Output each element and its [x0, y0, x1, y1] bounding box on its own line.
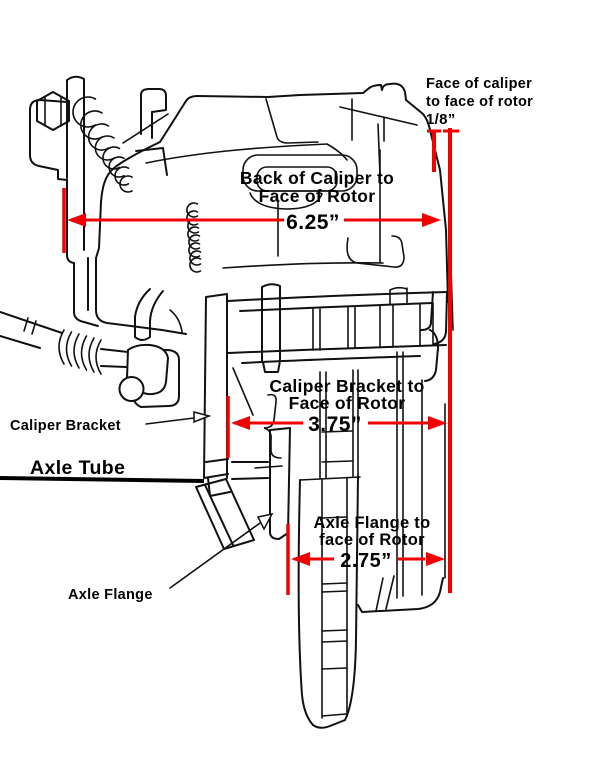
- dim-caliper-face-label-line2: to face of rotor: [426, 94, 533, 110]
- part-label-axle-tube: Axle Tube: [30, 457, 125, 479]
- arrowhead-right: [422, 213, 441, 227]
- axle-flange-plate: [270, 428, 290, 539]
- annotation-caliper-bracket-dim: Caliper Bracket to Face of Rotor 3.75”: [269, 376, 424, 436]
- dim-back-caliper-label-line2: Face of Rotor: [259, 186, 376, 206]
- dim-caliper-face-label-line1: Face of caliper: [426, 76, 532, 92]
- dim-caliper-bracket-label-line2: Face of Rotor: [289, 393, 406, 413]
- arrowhead-left: [231, 416, 250, 430]
- annotation-axle-flange-dim: Axle Flange to face of Rotor 2.75”: [314, 514, 431, 572]
- dim-axle-flange-value: 2.75”: [340, 550, 391, 572]
- arrowhead-right: [426, 552, 445, 566]
- leader-caliper-bracket: [146, 412, 209, 424]
- leader-axle-flange: [170, 514, 272, 588]
- brake-caliper-measurement-diagram: Face of caliper to face of rotor 1/8” Ba…: [0, 0, 600, 765]
- arrowhead-left: [291, 552, 310, 566]
- hex-bolt-head: [37, 92, 69, 130]
- annotation-caliper-face: Face of caliper to face of rotor 1/8”: [426, 76, 533, 128]
- mounting-bracket: [30, 77, 168, 182]
- arrowhead-right: [428, 416, 447, 430]
- diagram-canvas: Face of caliper to face of rotor 1/8” Ba…: [0, 0, 600, 765]
- tie-rod: [0, 312, 168, 401]
- dim-back-caliper-label-line1: Back of Caliper to: [240, 168, 394, 188]
- annotation-back-of-caliper: Back of Caliper to Face of Rotor 6.25”: [240, 168, 394, 234]
- leader-arrowhead: [194, 412, 209, 422]
- pad-carrier: [228, 284, 447, 381]
- spring-coil-left-edge: [187, 203, 201, 272]
- dim-caliper-bracket-value: 3.75”: [308, 413, 362, 436]
- dim-back-caliper-value: 6.25”: [286, 211, 340, 234]
- dim-axle-flange-label-line2: face of Rotor: [319, 531, 425, 549]
- ball-joint-stud: [120, 377, 144, 401]
- part-label-axle-flange: Axle Flange: [68, 587, 153, 603]
- dim-caliper-face-value: 1/8”: [426, 111, 456, 128]
- caliper-body: [96, 84, 453, 334]
- spring-coil: [73, 97, 132, 192]
- arrowhead-left: [67, 213, 86, 227]
- part-label-caliper-bracket: Caliper Bracket: [10, 418, 121, 434]
- dim-axle-flange-label-line1: Axle Flange to: [314, 514, 431, 532]
